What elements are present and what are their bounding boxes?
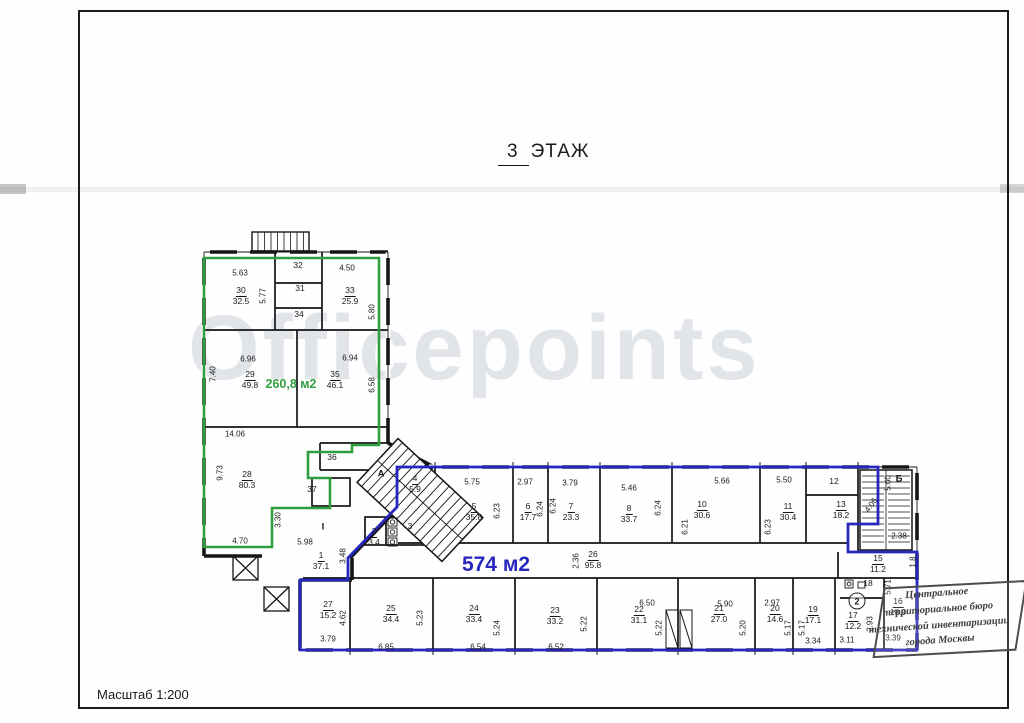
dimension-label: 6.21 [681,519,690,535]
dimension-label: 5.22 [655,620,664,636]
scale-label: Масштаб 1:200 [97,687,189,702]
bti-stamp: Центральноетерриториальное бюротехническ… [852,580,1024,664]
room-label: 1917.1 [805,605,822,625]
room-label: 617.7 [520,502,537,522]
floor-number: 3 [498,141,529,166]
room-label: 2433.4 [466,604,483,624]
staircase-letter-mark: А [378,469,385,480]
dimension-label: 6.24 [549,498,558,514]
dimension-label: 5.50 [776,476,792,485]
room-label: 723.3 [563,502,580,522]
room-label: 34 [294,310,303,320]
room-label: 2695.8 [585,550,602,570]
dimension-label: 5.66 [714,477,730,486]
room-label: 36 [327,453,336,463]
room-label: 1318.2 [833,500,850,520]
dimension-label: 4.50 [339,264,355,273]
stamp-text: Центральноетерриториальное бюротехническ… [844,580,1024,656]
dimension-label: 6.52 [548,643,564,652]
dimension-label: 3.34 [805,637,821,646]
room-label: 23.4 [368,527,380,547]
dimension-label: 5.98 [297,538,313,547]
dimension-label: 3.48 [339,548,348,564]
dimension-label: 2.97 [764,599,780,608]
dimension-label: 4.62 [339,610,348,626]
dimension-label: 4.70 [232,537,248,546]
room-label: 3546.1 [327,370,344,390]
dimension-label: 7.40 [209,366,218,382]
dimension-label: 3.30 [274,512,283,528]
staircase-letter-mark: I [322,522,325,533]
room-label: 2231.1 [631,605,648,625]
room-label: 3032.5 [233,286,250,306]
room-label: 833.7 [621,504,638,524]
dimension-label: 6.23 [493,503,502,519]
room-label: 2715.2 [320,600,337,620]
dimension-label: 4.06 [863,496,879,514]
room-label: 1030.6 [694,500,711,520]
room-label: 2949.8 [242,370,259,390]
dimension-label: 6.24 [536,501,545,517]
room-label: 2333.2 [547,606,564,626]
room-label: 535.8 [466,502,483,522]
dimension-label: 14.06 [225,430,245,439]
dimension-label: 5.63 [232,269,248,278]
room-label: 3 [408,522,413,532]
dimension-label: 6.54 [470,643,486,652]
room-label: 32 [293,261,302,271]
dimension-label: 2.36 [572,553,581,569]
room-label: 137.1 [313,551,330,571]
dimension-label: 6.94 [342,354,358,363]
dimension-label: 6.85 [378,643,394,652]
room-label: 31 [295,284,304,294]
dimension-label: 5.20 [739,620,748,636]
room-label: 1130.4 [780,502,797,522]
page-title: 3 ЭТАЖ [498,141,589,166]
dimension-label: 1.8 [909,556,918,567]
dimension-label: 5.75 [464,478,480,487]
dimension-label: 6.23 [764,519,773,535]
dimension-label: 3.79 [562,479,578,488]
room-label: 2880.3 [239,470,256,490]
dimension-label: 6.50 [639,599,655,608]
green-zone-area-label: 260,8 м2 [266,377,317,391]
room-label: 1511.2 [870,554,886,574]
dimension-label: 5.46 [621,484,637,493]
dimension-label: 2.38 [891,532,907,541]
dimension-label: 5.23 [416,610,425,626]
dimension-label: 5.60 [884,475,893,491]
floor-word: ЭТАЖ [531,141,590,163]
room-label: 12 [829,477,838,487]
dimension-label: 3.79 [320,635,336,644]
blue-zone-area-label: 574 м2 [462,553,530,577]
dimension-label: 6.96 [240,355,256,364]
room-label: 3325.9 [342,286,359,306]
scanned-floor-plan-sheet: Officepoints [0,0,1024,723]
dimension-label: 5.17 [784,620,793,636]
dimension-label: 9.73 [216,465,225,481]
dimension-label: 2.97 [517,478,533,487]
staircase-letter-mark: Б [896,474,903,485]
dimension-label: 5.77 [259,288,268,304]
dimension-label: 5.17 [798,620,807,636]
dimension-label: 5.90 [717,600,733,609]
room-label: 2534.4 [383,604,400,624]
room-label: 45.9 [409,474,421,494]
dimension-label: 5.24 [493,620,502,636]
dimension-label: 5.80 [368,304,377,320]
dimension-label: 5.22 [580,616,589,632]
dimension-label: 6.24 [654,500,663,516]
room-label: 37 [307,485,316,495]
dimension-label: 6.58 [368,377,377,393]
